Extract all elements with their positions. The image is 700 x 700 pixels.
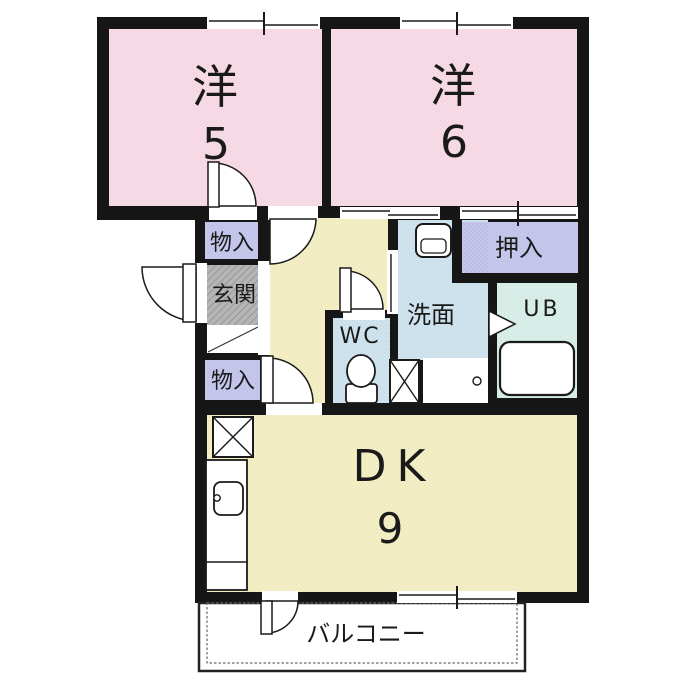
oshiire-label: 押入 xyxy=(495,234,543,262)
closet-top-doorway xyxy=(209,206,257,220)
bedroom5-size: 5 xyxy=(202,119,230,170)
closet-top-label: 物入 xyxy=(210,231,254,256)
kitchen-counter-icon xyxy=(206,460,247,590)
washroom-label: 洗面 xyxy=(407,301,455,329)
toilet-door-leaf xyxy=(340,268,351,312)
closet-mid-label: 物入 xyxy=(211,369,255,394)
bedroom5-label: 洋 xyxy=(192,60,238,114)
washroom-sliding-door xyxy=(387,250,398,314)
dk-label: DK xyxy=(353,441,436,492)
unit-bath-label: UB xyxy=(523,297,560,322)
unit-bath-left-wall xyxy=(488,283,497,398)
closet-mid-door-leaf xyxy=(261,356,273,403)
bedroom6-label: 洋 xyxy=(430,59,476,113)
entry-hall-passage xyxy=(258,261,270,355)
floor-plan-canvas: 洋 5 洋 6 物入 玄関 物入 WC 洗面 押入 UB DK 9 バルコニー xyxy=(0,0,700,700)
faucet-icon xyxy=(214,495,220,501)
bathtub-icon xyxy=(500,342,574,395)
entrance-door-leaf xyxy=(183,264,196,322)
door-knob-icon xyxy=(473,377,481,385)
balcony-label: バルコニー xyxy=(306,620,426,648)
dk-doorway xyxy=(266,403,322,415)
floor-plan-svg: 洋 5 洋 6 物入 玄関 物入 WC 洗面 押入 UB DK 9 バルコニー xyxy=(0,0,700,700)
bedroom5-doorway xyxy=(268,206,318,220)
toilet-label: WC xyxy=(339,324,380,349)
bedroom6-sliding-door xyxy=(340,207,440,219)
bedroom6-size: 6 xyxy=(440,117,468,168)
toilet-bowl-icon xyxy=(347,355,375,387)
dk-size: 9 xyxy=(377,504,404,553)
entrance-label: 玄関 xyxy=(212,283,256,308)
washbasin-bowl-icon xyxy=(421,239,446,253)
balcony-door-leaf xyxy=(261,601,272,634)
entrance-doorway xyxy=(195,263,207,323)
